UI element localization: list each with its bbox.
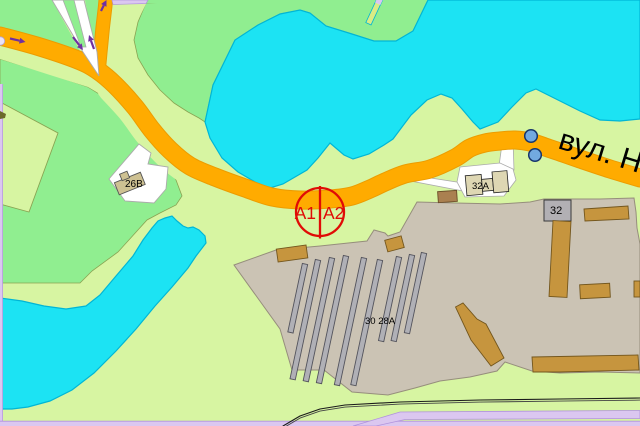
svg-text:26В: 26В — [125, 179, 143, 190]
svg-text:30 28А: 30 28А — [365, 316, 396, 327]
svg-text:А2: А2 — [323, 203, 344, 223]
svg-text:32: 32 — [550, 205, 562, 217]
svg-text:32А: 32А — [472, 181, 490, 192]
svg-text:А1: А1 — [295, 203, 316, 223]
